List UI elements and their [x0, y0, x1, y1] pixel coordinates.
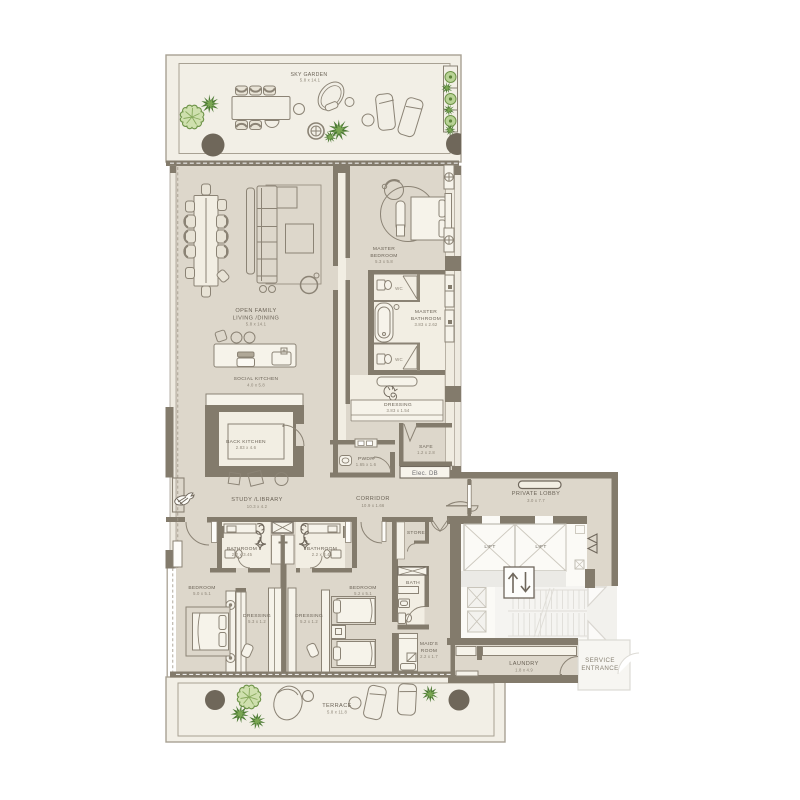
svg-text:MASTER: MASTER: [373, 246, 395, 252]
svg-text:5.3 x 1.2: 5.3 x 1.2: [248, 619, 266, 624]
svg-text:2.2 x 3.45: 2.2 x 3.45: [232, 552, 253, 557]
svg-text:PRIVATE LOBBY: PRIVATE LOBBY: [512, 491, 561, 497]
svg-text:SOCIAL KITCHEN: SOCIAL KITCHEN: [234, 376, 279, 382]
svg-text:3.83 x 2.62: 3.83 x 2.62: [415, 322, 438, 327]
svg-text:1.65 x 1.6: 1.65 x 1.6: [356, 462, 377, 467]
svg-text:1.8 x 4.9: 1.8 x 4.9: [515, 668, 533, 673]
svg-text:5.2 x 5.1: 5.2 x 5.1: [354, 591, 372, 596]
svg-text:2.2 x 1.7: 2.2 x 1.7: [420, 654, 438, 659]
svg-text:LIFT: LIFT: [484, 544, 495, 550]
svg-text:CORRIDOR: CORRIDOR: [356, 496, 390, 502]
svg-text:5.8 x 14.1: 5.8 x 14.1: [246, 322, 267, 327]
svg-text:5.2 x 1.2: 5.2 x 1.2: [300, 619, 318, 624]
svg-text:5.0 x 5.1: 5.0 x 5.1: [193, 591, 211, 596]
svg-text:10.9 x 1.66: 10.9 x 1.66: [362, 503, 385, 508]
svg-text:WC: WC: [395, 357, 403, 362]
svg-text:TERRACE: TERRACE: [322, 703, 352, 709]
svg-text:3.83 x 1.54: 3.83 x 1.54: [387, 408, 410, 413]
svg-text:5.8 x 14.1: 5.8 x 14.1: [300, 78, 321, 83]
svg-text:STORE: STORE: [407, 530, 426, 536]
svg-text:LAUNDRY: LAUNDRY: [509, 661, 538, 667]
svg-text:Elec. DB: Elec. DB: [412, 470, 438, 477]
svg-text:WC: WC: [395, 286, 403, 291]
svg-text:2.83 x 4.6: 2.83 x 4.6: [236, 445, 257, 450]
svg-text:10.3 x 4.2: 10.3 x 4.2: [247, 504, 268, 509]
svg-text:3.0 x 7.7: 3.0 x 7.7: [527, 498, 545, 503]
svg-text:MAID'S: MAID'S: [420, 641, 439, 647]
svg-text:2.2 x 3.45: 2.2 x 3.45: [312, 552, 333, 557]
svg-text:OPEN FAMILY: OPEN FAMILY: [235, 308, 276, 314]
svg-text:BATH: BATH: [406, 580, 420, 586]
svg-text:ENTRANCE: ENTRANCE: [581, 665, 618, 672]
svg-text:5.3 x 5.8: 5.3 x 5.8: [375, 259, 393, 264]
svg-text:SERVICE: SERVICE: [585, 657, 615, 664]
svg-text:4.0 x 5.8: 4.0 x 5.8: [247, 383, 265, 388]
svg-text:5.8 x 11.8: 5.8 x 11.8: [327, 710, 348, 715]
svg-text:STUDY /LIBRARY: STUDY /LIBRARY: [231, 497, 282, 503]
svg-text:MASTER: MASTER: [415, 309, 437, 315]
svg-text:1.2 x 2.8: 1.2 x 2.8: [417, 450, 435, 455]
svg-text:LIFT: LIFT: [535, 544, 546, 550]
